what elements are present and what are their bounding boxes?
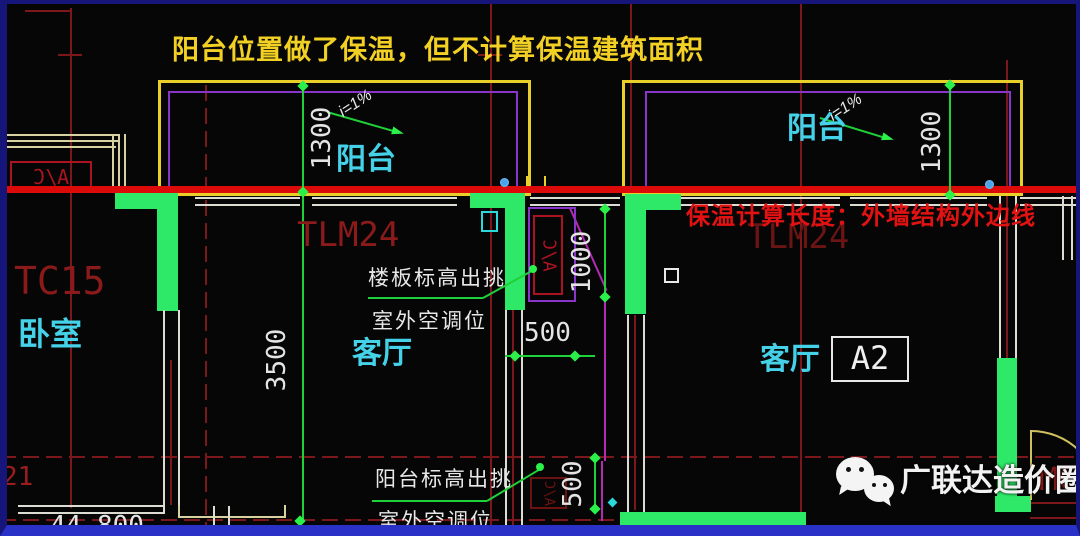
window-sill	[312, 197, 457, 206]
highlight-red-line	[0, 186, 1080, 193]
leader-dot	[529, 265, 537, 273]
leader-dot	[536, 463, 544, 471]
wall-line	[521, 310, 523, 530]
anno-balcony-slab-line2: 室外空调位	[378, 511, 493, 533]
cad-drawing-canvas: A/C A/C A/C i=1% i=1% 阳台位置	[0, 0, 1080, 536]
window-line	[112, 134, 114, 190]
drain-line	[601, 461, 603, 521]
wall-line	[627, 315, 629, 512]
dim-marker	[589, 452, 600, 463]
ac-unit-label: A/C	[541, 480, 556, 505]
wall-line	[18, 505, 165, 507]
wall-fill	[625, 194, 646, 314]
watermark: 广联达造价圈	[834, 455, 1080, 507]
step-line	[178, 516, 286, 518]
wall-fill	[157, 193, 178, 311]
dim-text-1300-left: 1300	[309, 96, 335, 180]
wall-line	[163, 310, 165, 512]
blue-grip-dot	[500, 178, 509, 187]
leader-line	[368, 297, 483, 299]
grip-square	[664, 268, 679, 283]
watermark-text: 广联达造价圈	[900, 465, 1080, 498]
axis-line-vertical	[70, 8, 72, 508]
window-jamb	[1062, 196, 1064, 260]
unit-tag-a2-box: A2	[831, 336, 909, 382]
room-label-balcony-right: 阳台	[787, 113, 847, 145]
ac-unit-label: A/C	[33, 167, 69, 188]
wall-axis-line	[170, 360, 172, 505]
step-line	[228, 506, 230, 534]
cyan-marker	[608, 498, 618, 508]
window-sill	[195, 197, 300, 206]
step-line	[178, 505, 180, 516]
blue-grip-dot	[853, 527, 862, 536]
wall-line	[643, 315, 645, 512]
dim-line	[302, 85, 304, 523]
anno-balcony-slab-line1: 阳台标高出挑	[375, 469, 513, 491]
blue-grip-dot	[985, 180, 994, 189]
room-label-living-left: 客厅	[352, 338, 412, 370]
window-line	[0, 146, 116, 148]
dim-text-1000: 1000	[569, 220, 595, 304]
dim-text-1300-right: 1300	[919, 100, 945, 184]
axis-tick	[25, 10, 70, 12]
axis-number-21: 21	[2, 464, 33, 491]
room-label-balcony-left: 阳台	[336, 144, 396, 176]
door-tag-tc15: TC15	[14, 262, 106, 302]
wechat-icon	[834, 455, 894, 507]
step-line	[284, 505, 286, 516]
drain-line	[604, 291, 606, 461]
room-label-bedroom: 卧室	[18, 318, 82, 352]
ac-unit-box-shaft: A/C	[533, 215, 563, 295]
wall-line	[505, 310, 507, 530]
window-line	[124, 134, 126, 190]
dim-marker	[589, 503, 600, 514]
window-line	[0, 140, 118, 142]
wall-axis-line	[634, 315, 636, 510]
door-tag-tlm24-left: TLM24	[297, 218, 399, 254]
wall-fill	[505, 196, 525, 310]
small-window-symbol	[481, 211, 498, 232]
leader-line	[372, 500, 487, 502]
unit-tag-a2: A2	[851, 342, 890, 376]
dim-text-500-vertical: 500	[560, 442, 586, 526]
dim-line	[949, 83, 951, 197]
dim-text-3500: 3500	[264, 318, 290, 402]
axis-tick	[58, 54, 82, 56]
wall-line	[178, 310, 180, 512]
anno-floor-slab-line2: 室外空调位	[372, 311, 487, 333]
wall-fill	[620, 512, 806, 530]
anno-floor-slab-line1: 楼板标高出挑	[368, 268, 506, 290]
elevation-text: 44.800	[50, 513, 144, 536]
dim-marker	[569, 350, 580, 361]
step-line	[213, 506, 215, 534]
banner-title: 阳台位置做了保温，但不计算保温建筑面积	[172, 36, 704, 64]
axis-line-horizontal	[1030, 517, 1080, 519]
window-jamb	[1071, 196, 1073, 260]
dim-text-500-horizontal: 500	[524, 320, 571, 347]
room-label-living-right: 客厅	[760, 344, 820, 376]
window-line	[0, 134, 120, 136]
insulation-note: 保温计算长度：外墙结构外边线	[686, 204, 1036, 229]
dim-marker	[599, 291, 610, 302]
dim-line	[604, 207, 606, 298]
window-line	[118, 134, 120, 190]
wall-axis-line	[512, 310, 514, 530]
ac-unit-label: A/C	[539, 239, 558, 272]
